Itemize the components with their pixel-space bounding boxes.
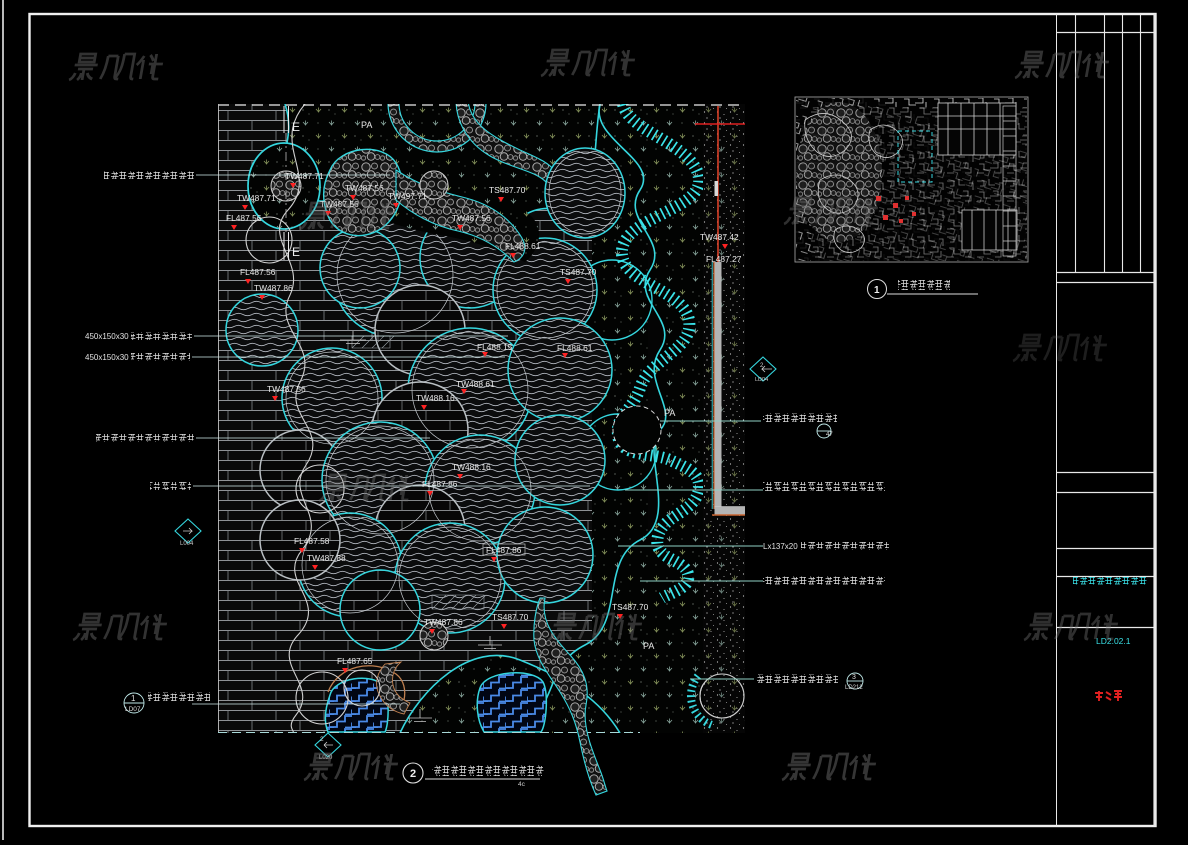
svg-text:E: E bbox=[292, 120, 300, 134]
svg-text:LD2.02.1: LD2.02.1 bbox=[1096, 636, 1131, 646]
svg-text:1: 1 bbox=[131, 694, 136, 703]
svg-text:TW487.56: TW487.56 bbox=[452, 213, 491, 223]
svg-text:LD07: LD07 bbox=[125, 706, 141, 713]
svg-text:FL487.58: FL487.58 bbox=[294, 536, 330, 546]
svg-text:1: 1 bbox=[874, 285, 880, 296]
svg-text:TW487.56: TW487.56 bbox=[345, 183, 384, 193]
svg-text:TW487.71: TW487.71 bbox=[285, 171, 324, 181]
svg-text:FL487.86: FL487.86 bbox=[422, 479, 458, 489]
svg-text:TW487.86: TW487.86 bbox=[424, 617, 463, 627]
svg-text:FL487.27: FL487.27 bbox=[706, 254, 742, 264]
svg-text:TW488.61: TW488.61 bbox=[456, 379, 495, 389]
svg-text:PA: PA bbox=[361, 120, 372, 130]
svg-text:TW487.56: TW487.56 bbox=[267, 384, 306, 394]
svg-text:TW487.86: TW487.86 bbox=[254, 283, 293, 293]
svg-text:TW488.16: TW488.16 bbox=[452, 462, 491, 472]
svg-text:TW487.88: TW487.88 bbox=[307, 553, 346, 563]
svg-text:FL487.86: FL487.86 bbox=[486, 545, 522, 555]
svg-text:2: 2 bbox=[410, 768, 416, 780]
svg-text:2: 2 bbox=[320, 736, 324, 743]
svg-text:FL487.65: FL487.65 bbox=[337, 656, 373, 666]
svg-text:LD04: LD04 bbox=[755, 377, 768, 383]
svg-text:TW487.71: TW487.71 bbox=[237, 193, 276, 203]
svg-text:450x150x30: 450x150x30 bbox=[85, 353, 129, 362]
svg-text:TS487.70: TS487.70 bbox=[560, 267, 597, 277]
svg-text:TS487.70: TS487.70 bbox=[489, 185, 526, 195]
svg-text:TS487.70: TS487.70 bbox=[612, 602, 649, 612]
svg-text:450x150x30: 450x150x30 bbox=[85, 332, 129, 341]
svg-text:FL488.61: FL488.61 bbox=[557, 343, 593, 353]
svg-text:L004: L004 bbox=[180, 541, 194, 547]
svg-text:PA: PA bbox=[643, 641, 654, 651]
svg-text:TW488.16: TW488.16 bbox=[416, 393, 455, 403]
svg-text:TS487.70: TS487.70 bbox=[492, 612, 529, 622]
svg-text:Lx137x20: Lx137x20 bbox=[763, 542, 798, 551]
svg-text:TW487.42: TW487.42 bbox=[700, 232, 739, 242]
svg-text:FL488.15: FL488.15 bbox=[477, 342, 513, 352]
svg-text:FL488.61: FL488.61 bbox=[505, 241, 541, 251]
svg-text:FL487.56: FL487.56 bbox=[226, 213, 262, 223]
svg-text:FL487.56: FL487.56 bbox=[240, 267, 276, 277]
svg-text:PA: PA bbox=[664, 408, 675, 418]
svg-text:4c: 4c bbox=[518, 781, 526, 788]
svg-text:TW497.71: TW497.71 bbox=[388, 191, 427, 201]
svg-text:LD212: LD212 bbox=[845, 685, 863, 691]
svg-text:47: 47 bbox=[826, 432, 833, 438]
svg-text:E: E bbox=[292, 245, 300, 259]
svg-text:3: 3 bbox=[852, 674, 856, 681]
